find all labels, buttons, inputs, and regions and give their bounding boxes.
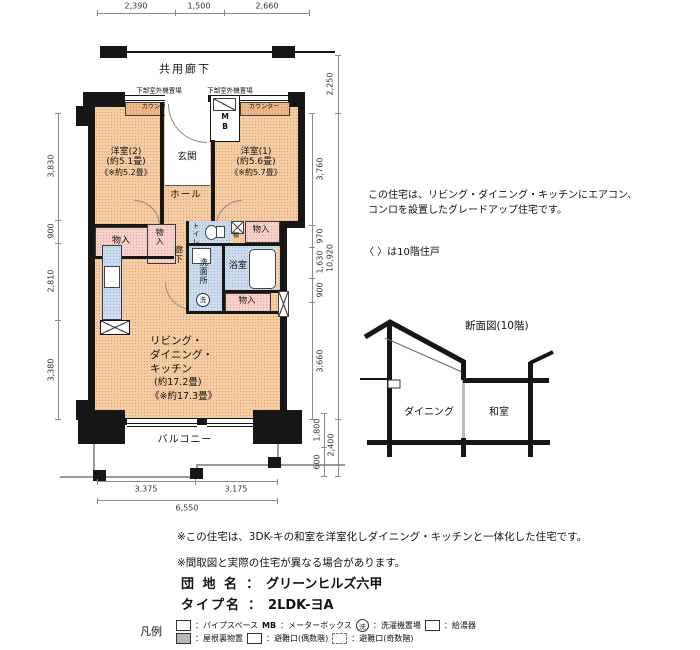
dim-line-bottom-2 — [97, 500, 278, 501]
wall-wet-bottom — [186, 311, 282, 314]
ldk-area10: 《※約17.3畳》 — [150, 390, 217, 404]
tick — [309, 10, 310, 16]
legend-row-1: ：パイプスペース MB ：メーターボックス 洗 ：洗濯機置場 ：給湯器 — [176, 619, 476, 632]
room2-name: 洋室(2) — [92, 147, 160, 157]
tick — [55, 243, 61, 244]
tick — [309, 113, 315, 114]
section-balcony-step — [388, 380, 400, 388]
section-dining-label: ダイニング — [404, 405, 454, 418]
bath-label: 浴室 — [229, 261, 247, 271]
closet-top-right-label: 物入 — [252, 226, 269, 236]
estate-label: 団 地 名 — [181, 578, 239, 593]
dim-left-3: 2,810 — [46, 270, 55, 293]
balcony-edge-h1 — [60, 476, 198, 478]
tick — [309, 247, 315, 248]
ldk-line1: リビング・ — [150, 334, 217, 348]
room2-label: 洋室(2) (約5.1畳) 《※約5.2畳》 — [92, 147, 160, 177]
tick — [175, 10, 176, 16]
tick — [277, 479, 278, 485]
dim-top-2: 1,500 — [188, 1, 211, 10]
tick — [335, 476, 341, 477]
escape-hatch-right — [278, 291, 289, 317]
dim-right-4: 900 — [315, 282, 324, 297]
estate-value: グリーンヒルズ六甲 — [266, 578, 382, 593]
ldk-line3: キッチン — [150, 362, 217, 376]
type-colon: ： — [248, 599, 261, 614]
ldk-area: (約17.2畳) — [154, 376, 217, 390]
bathtub — [249, 249, 276, 289]
grade-note-line1: この住宅は、リビング・ダイニング・キッチンにエアコン、 — [368, 190, 637, 202]
room1-name: 洋室(1) — [218, 147, 294, 157]
tick — [97, 479, 98, 485]
dim-top-1: 2,390 — [125, 1, 148, 10]
dim-bottom-left: 3,375 — [135, 484, 158, 493]
dim-right-1: 3,760 — [315, 158, 324, 181]
section-washitsu-label: 和室 — [489, 405, 509, 418]
water-heater-icon — [213, 98, 236, 111]
type-label: タイプ名 — [181, 599, 241, 614]
tick — [335, 55, 341, 56]
floor-plan-sheet: 2,390 1,500 2,660 共用廊下 下部室外機置場 下部室外機置場 カ… — [0, 0, 700, 650]
legend-hatch-odd: ：避難口(奇数階) — [351, 633, 413, 644]
dim-line-left — [58, 113, 59, 420]
floor-note: 〈 〉は10階住戸 — [364, 247, 440, 259]
tick — [309, 278, 315, 279]
tick — [335, 113, 341, 114]
dim-right-total: 10,920 — [325, 244, 334, 272]
wall-room2-hall — [160, 102, 164, 228]
mb-box: MB — [210, 95, 240, 142]
dim-left-1: 3,830 — [46, 155, 55, 178]
balcony-label: バルコニー — [158, 434, 213, 446]
section-mid-wall-light — [462, 380, 465, 438]
balcony-post-2 — [190, 468, 203, 479]
legend-row-2: ：屋根裏物置 ：避難口(偶数階) ：避難口(奇数階) — [176, 633, 414, 644]
pillar-left-upper — [76, 106, 88, 126]
tick — [321, 413, 327, 414]
dim-line-balcony — [324, 413, 325, 477]
tick — [97, 498, 98, 504]
dim-bottom-total: 6,550 — [176, 503, 199, 512]
room2-area10: 《※約5.2畳》 — [92, 168, 160, 177]
escape-hatch-even-icon — [247, 633, 262, 644]
grade-note-line2: コンロを設置したグレードアップ住宅です。 — [368, 205, 567, 217]
dim-corridor-depth: 2,250 — [325, 73, 334, 96]
tick — [224, 10, 225, 16]
wall-right-lower — [280, 221, 287, 425]
tick — [55, 419, 61, 420]
dim-left-2: 900 — [46, 223, 55, 238]
outdoor-unit-label-right: 下部室外機置場 — [207, 87, 253, 94]
legend-heater: ：給湯器 — [444, 620, 476, 631]
bottom-note-2: ※間取図と実際の住宅が異なる場合があります。 — [177, 557, 405, 569]
tick — [55, 113, 61, 114]
tick — [309, 225, 315, 226]
outdoor-unit-label-left: 下部室外機置場 — [136, 87, 182, 94]
pillar-top-right — [288, 92, 305, 107]
section-roof — [365, 322, 464, 362]
corridor-block-left — [100, 46, 127, 58]
mb-label: MB — [220, 112, 229, 132]
room1-area10: 《※約5.7畳》 — [218, 168, 294, 177]
dim-line-right-outer — [338, 55, 339, 477]
estate-colon: ： — [246, 578, 259, 593]
section-mid-wall-top — [461, 360, 466, 380]
estate-name-row: 団 地 名 ： グリーンヒルズ六甲 — [181, 578, 382, 593]
type-value: 2LDK-ヨA — [268, 599, 334, 614]
water-heater-legend-icon — [425, 620, 440, 631]
ldk-window-left — [127, 418, 197, 427]
tick — [195, 479, 196, 485]
dim-balcony-total: 2,400 — [326, 434, 335, 457]
dim-line-right-inner — [312, 113, 313, 420]
washer-icon: 洗 — [196, 293, 210, 307]
kitchen-sink — [104, 266, 120, 288]
dim-left-4: 3,380 — [46, 359, 55, 382]
bottom-note-1: ※この住宅は、3DK-キの和室を洋室化しダイニング・キッチンと一体化した住宅です… — [177, 531, 587, 543]
tick — [321, 476, 327, 477]
attic-storage-icon — [176, 633, 191, 644]
pipe-space-icon — [176, 620, 191, 631]
tick — [277, 498, 278, 504]
corridor-wall-line — [100, 51, 335, 53]
room1-label: 洋室(1) (約5.6畳) 《※約5.7畳》 — [218, 147, 294, 177]
dim-bottom-right: 3,175 — [225, 484, 248, 493]
dim-line-top — [97, 13, 310, 14]
hall-label: ホール — [170, 191, 202, 202]
legend-mb-symbol: MB — [262, 621, 276, 630]
legend-washer: ：洗濯機置場 — [373, 620, 421, 631]
room2-area: (約5.1畳) — [92, 157, 160, 167]
legend-pipe-space: ：パイプスペース — [195, 620, 258, 631]
balcony-post-3 — [268, 457, 281, 468]
ldk-line2: ダイニング・ — [150, 348, 217, 362]
rouka-label: 廊下 — [172, 245, 182, 264]
room1-area: (約5.6畳) — [218, 157, 294, 167]
wall-right-upper — [298, 95, 305, 228]
wall-left — [88, 95, 95, 425]
wall-hall-room1 — [211, 140, 215, 225]
section-floor — [367, 440, 550, 445]
section-right-slant — [530, 352, 553, 363]
pillar-top-left — [83, 92, 125, 107]
corridor-block-right — [272, 46, 295, 58]
balcony-block-right — [253, 410, 302, 444]
ldk-label: リビング・ ダイニング・ キッチン (約17.2畳) 《※約17.3畳》 — [150, 334, 217, 404]
tick — [55, 220, 61, 221]
shelf-label: 棚 — [233, 233, 239, 240]
tick — [55, 320, 61, 321]
washer-circle-icon: 洗 — [356, 619, 369, 632]
dim-line-bottom-1 — [97, 481, 278, 482]
tick — [97, 10, 98, 16]
washroom-label: 洗面所 — [199, 258, 208, 285]
dim-top-3: 2,660 — [256, 1, 279, 10]
legend-title: 凡例 — [140, 626, 162, 639]
dim-right-3: 1,630 — [315, 251, 324, 274]
escape-hatch-left — [100, 320, 130, 335]
corridor-label: 共用廊下 — [159, 64, 211, 77]
legend-attic: ：屋根裏物置 — [195, 633, 243, 644]
escape-hatch-odd-icon — [332, 633, 347, 644]
section-balcony-line — [360, 378, 387, 380]
legend-hatch-even: ：避難口(偶数階) — [266, 633, 328, 644]
section-left-wall — [387, 323, 392, 457]
section-diagram: ダイニング 和室 — [360, 312, 570, 472]
counter-label-right: カウンター — [249, 105, 279, 112]
genkan-step-line — [165, 185, 210, 186]
closet-mid-label: 物入 — [155, 228, 164, 246]
closet-bottom-right-label: 物入 — [238, 297, 255, 307]
dim-balcony-edge: 600 — [312, 454, 321, 469]
balcony-block-left — [78, 410, 125, 444]
type-name-row: タイプ名 ： 2LDK-ヨA — [181, 599, 334, 614]
section-washitsu-ceiling — [463, 378, 549, 383]
dim-right-5: 3,660 — [315, 350, 324, 373]
dim-balcony-depth: 1,800 — [312, 419, 321, 442]
genkan-door-gap — [165, 95, 208, 102]
legend-mb-text: ：メーターボックス — [280, 620, 352, 631]
genkan-label: 玄関 — [177, 153, 196, 164]
toilet-tank — [216, 226, 225, 238]
dim-right-2: 970 — [315, 228, 324, 243]
tick — [335, 419, 341, 420]
tick — [309, 302, 315, 303]
balcony-post-1 — [93, 470, 106, 481]
